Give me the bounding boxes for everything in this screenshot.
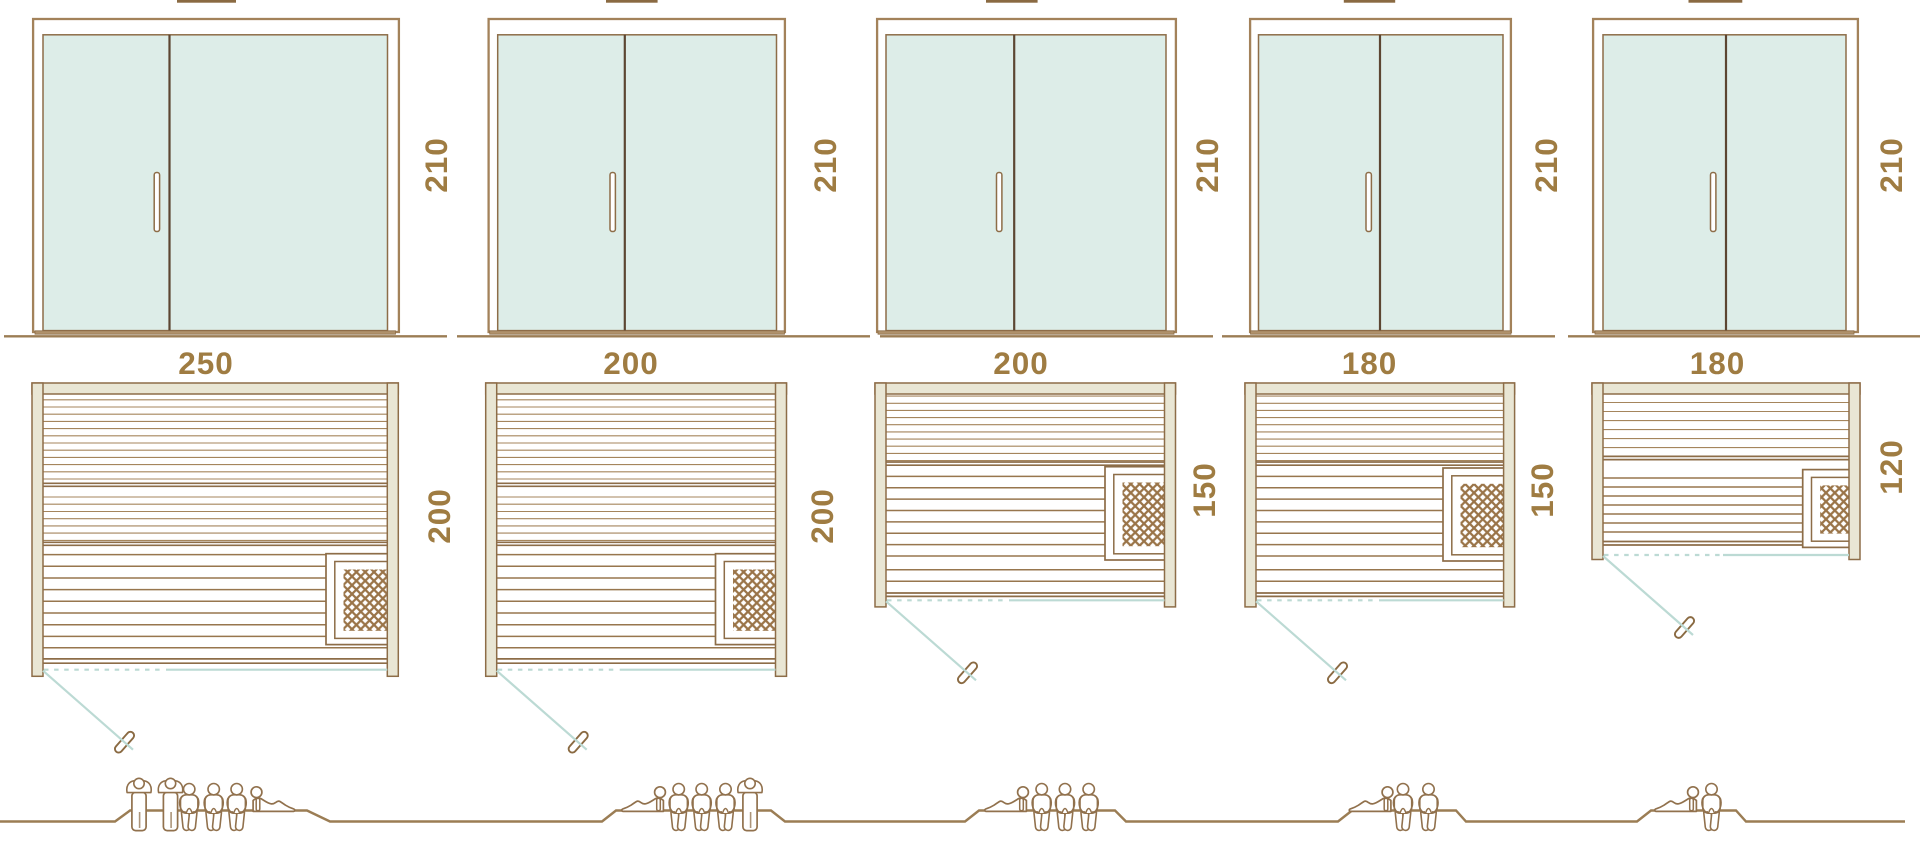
svg-text:200: 200 — [993, 345, 1049, 381]
svg-text:120: 120 — [1873, 439, 1909, 495]
svg-text:200: 200 — [421, 488, 457, 544]
svg-text:250: 250 — [178, 345, 234, 381]
svg-text:210: 210 — [1873, 137, 1909, 193]
svg-text:210: 210 — [1189, 137, 1225, 193]
svg-text:210: 210 — [1528, 137, 1564, 193]
svg-text:200: 200 — [804, 488, 840, 544]
svg-text:210: 210 — [418, 137, 454, 193]
svg-text:150: 150 — [1186, 462, 1222, 518]
svg-text:180: 180 — [1342, 345, 1398, 381]
svg-text:180: 180 — [1690, 345, 1746, 381]
svg-text:200: 200 — [603, 345, 659, 381]
svg-text:210: 210 — [807, 137, 843, 193]
svg-text:150: 150 — [1524, 462, 1560, 518]
